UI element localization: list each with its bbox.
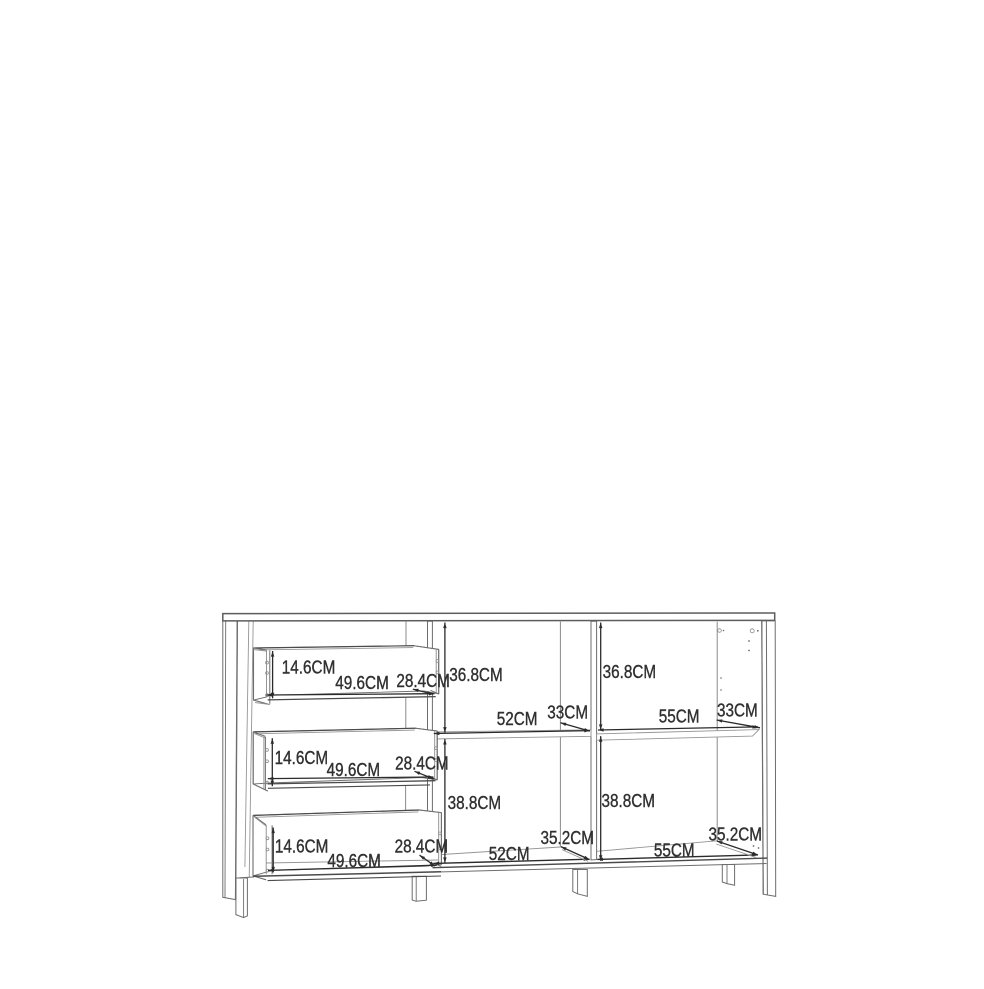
svg-text:49.6CM: 49.6CM — [327, 760, 381, 781]
svg-text:28.4CM: 28.4CM — [395, 836, 449, 857]
svg-text:52CM: 52CM — [497, 709, 538, 730]
svg-text:36.8CM: 36.8CM — [603, 662, 657, 683]
svg-text:55CM: 55CM — [659, 706, 700, 727]
svg-text:36.8CM: 36.8CM — [449, 665, 503, 686]
svg-text:35.2CM: 35.2CM — [541, 828, 595, 849]
svg-text:33CM: 33CM — [547, 702, 588, 723]
svg-text:35.2CM: 35.2CM — [709, 824, 763, 845]
svg-text:38.8CM: 38.8CM — [602, 791, 656, 812]
svg-text:33CM: 33CM — [717, 700, 758, 721]
svg-text:14.6CM: 14.6CM — [275, 748, 329, 769]
svg-text:38.8CM: 38.8CM — [448, 793, 502, 814]
svg-text:28.4CM: 28.4CM — [396, 671, 450, 692]
svg-text:49.6CM: 49.6CM — [335, 673, 389, 694]
svg-text:14.6CM: 14.6CM — [282, 657, 336, 678]
svg-text:55CM: 55CM — [654, 840, 695, 861]
svg-text:52CM: 52CM — [489, 844, 530, 865]
svg-text:14.6CM: 14.6CM — [275, 836, 329, 857]
svg-text:28.4CM: 28.4CM — [395, 753, 449, 774]
svg-text:49.6CM: 49.6CM — [327, 851, 381, 872]
